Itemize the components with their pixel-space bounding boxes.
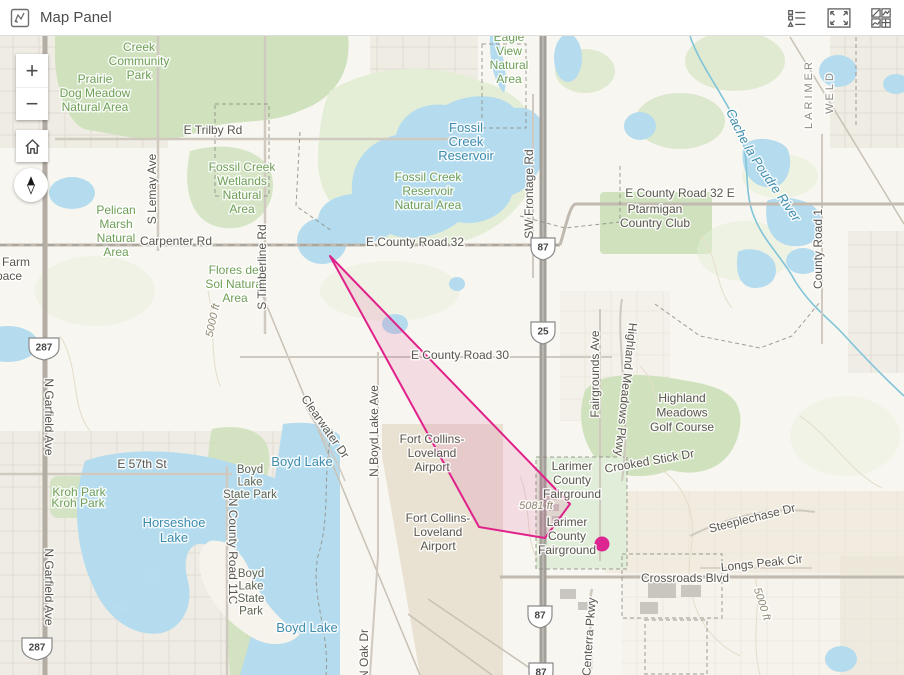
map-label: County Road 1 bbox=[811, 209, 825, 289]
map-label: E County Road 30 bbox=[411, 348, 509, 362]
map-label: SW Frontage Rd bbox=[522, 149, 536, 238]
home-icon bbox=[23, 137, 42, 156]
svg-text:287: 287 bbox=[29, 643, 46, 654]
map-label: HighlandMeadowsGolf Course bbox=[650, 391, 714, 434]
svg-text:287: 287 bbox=[36, 343, 53, 354]
map-canvas[interactable]: Cache la Poudre River CreekCommunityPark… bbox=[0, 36, 904, 675]
map-label: Space bbox=[0, 269, 22, 283]
map-label: Kroh Park bbox=[51, 496, 105, 510]
map-label: WELD bbox=[824, 70, 836, 114]
map-label: Carpenter Rd bbox=[140, 234, 212, 248]
map-label: E Trilby Rd bbox=[184, 123, 243, 137]
map-label: PtarmiganCountry Club bbox=[620, 202, 690, 230]
zoom-out-button[interactable]: − bbox=[16, 87, 48, 120]
expand-button[interactable] bbox=[826, 5, 852, 31]
svg-text:87: 87 bbox=[535, 668, 547, 675]
zoom-control: + − bbox=[16, 54, 48, 120]
map-label: E County Road 32 bbox=[366, 235, 464, 249]
compass-needle-icon bbox=[23, 173, 39, 197]
map-label: Fairgrounds Ave bbox=[588, 330, 602, 417]
basemap-gallery-button[interactable] bbox=[868, 5, 894, 31]
map-label: BoydLakeStatePark bbox=[238, 568, 265, 618]
legend-button[interactable] bbox=[784, 5, 810, 31]
svg-text:25: 25 bbox=[537, 327, 549, 338]
map-label: S Lemay Ave bbox=[145, 153, 159, 224]
svg-text:87: 87 bbox=[534, 611, 546, 622]
map-label: 5081 ft bbox=[519, 500, 554, 512]
map-label: N Garfield Ave bbox=[42, 378, 56, 455]
map-label: E 57th St bbox=[117, 457, 167, 471]
map-panel-icon bbox=[10, 8, 30, 28]
home-button[interactable] bbox=[16, 130, 48, 162]
map-label: New Farm bbox=[0, 255, 30, 269]
map-label: N Garfield Ave bbox=[42, 548, 56, 625]
map-label: Boyd Lake bbox=[276, 620, 337, 635]
app-window: Map Panel bbox=[0, 0, 904, 675]
header: Map Panel bbox=[0, 0, 904, 36]
map-panel: Cache la Poudre River CreekCommunityPark… bbox=[0, 36, 904, 675]
svg-text:87: 87 bbox=[537, 243, 549, 254]
map-label: N Oak Dr bbox=[357, 629, 371, 675]
point-graphic[interactable] bbox=[595, 537, 610, 552]
route-shield: 87 bbox=[529, 663, 553, 675]
compass-button[interactable] bbox=[14, 168, 48, 202]
zoom-in-button[interactable]: + bbox=[16, 54, 48, 87]
map-label: LARIMER bbox=[803, 59, 815, 129]
map-label: Boyd Lake bbox=[271, 454, 332, 469]
map-label: Fossil CreekReservoirNatural Area bbox=[395, 170, 463, 212]
page-title: Map Panel bbox=[40, 9, 112, 26]
map-label: N Boyd Lake Ave bbox=[367, 385, 381, 477]
map-label: Crossroads Blvd bbox=[641, 571, 729, 585]
map-label: S Timberline Rd bbox=[255, 224, 269, 309]
map-label: E County Road 32 E bbox=[625, 186, 734, 200]
